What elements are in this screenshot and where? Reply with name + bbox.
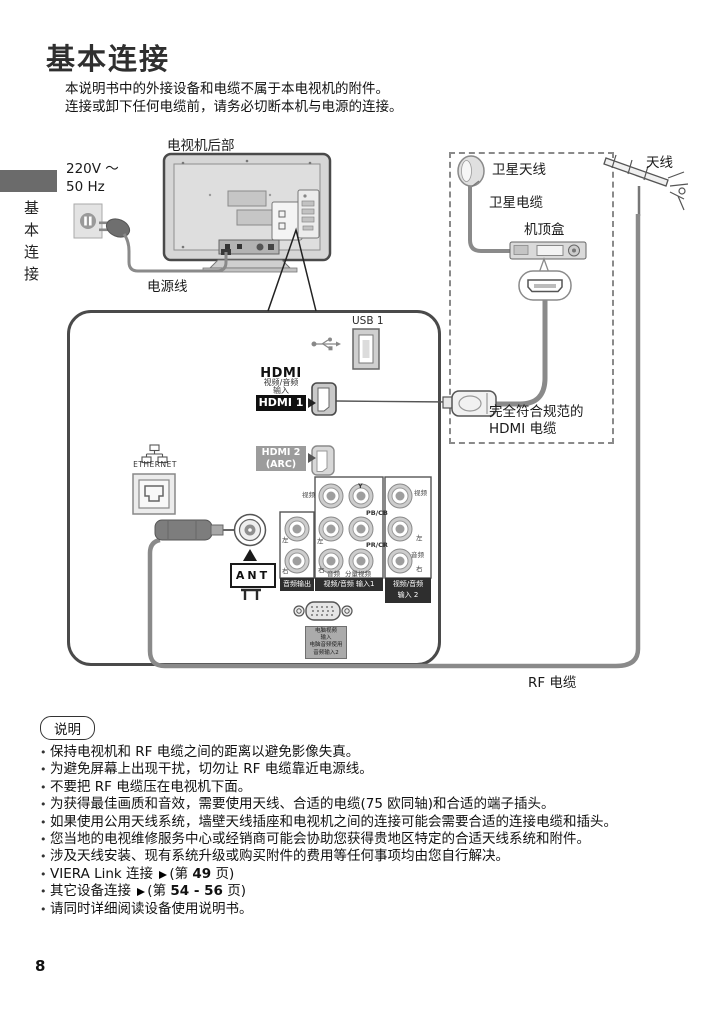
antenna-label: 天线	[646, 155, 673, 171]
satellite-dish-label: 卫星天线	[492, 162, 546, 178]
note-item: 不要把 RF 电缆压在电视机下面。	[40, 779, 702, 796]
jack-label-video-in2: 视频	[414, 490, 427, 497]
av-input2-bar: 视频/音频 输入 2	[385, 578, 431, 603]
note-item: 请同时详细阅读设备使用说明书。	[40, 901, 702, 918]
pc-input-label-box: 电脑视频 输入 电脑音频使用 音频输入2	[305, 626, 347, 659]
note-text: 页)	[223, 883, 246, 899]
note-item: 保持电视机和 RF 电缆之间的距离以避免影像失真。	[40, 744, 702, 761]
arrow-right-icon	[159, 871, 167, 879]
power-outlet-illustration	[74, 204, 102, 238]
audio-out-bar: 音频输出	[280, 578, 314, 591]
jack-label-y: Y	[358, 482, 363, 490]
jack-label-pb: PB/CB	[366, 509, 388, 517]
page-title: 基本连接	[46, 36, 170, 78]
hdmi-cable-label-line2: HDMI 电缆	[489, 421, 556, 437]
note-item-viera-link: VIERA Link 连接 (第 49 页)	[40, 866, 702, 883]
usb-label: USB 1	[352, 315, 384, 327]
jack-label-audio-in1: 音频	[327, 571, 340, 578]
callout-lines	[268, 230, 316, 311]
jack-label-right: 右	[282, 568, 289, 575]
intro-line-1: 本说明书中的外接设备和电缆不属于本电视机的附件。	[65, 81, 403, 99]
av-input2-bar-line1: 视频/音频	[385, 579, 431, 590]
jack-label-left-in2: 左	[416, 535, 423, 542]
hdmi-cable-label-line1: 完全符合规范的	[489, 404, 584, 420]
rf-cable-label: RF 电缆	[528, 675, 576, 691]
jack-label-pr: PR/CR	[366, 541, 388, 549]
tv-rear-label: 电视机后部	[167, 138, 235, 154]
ant-label-box: ANT	[230, 563, 276, 588]
notes-header: 说明	[40, 716, 95, 740]
power-cord	[124, 234, 226, 271]
jack-label-audio-in2: 音频	[411, 552, 424, 559]
pc-label-line4: 音频输入2	[306, 650, 346, 657]
page-number: 8	[35, 957, 45, 975]
av-input1-bar: 视频/音频 输入1	[315, 578, 383, 591]
jack-label-left: 左	[282, 537, 289, 544]
connection-panel-box	[67, 310, 441, 666]
hdmi1-chip: HDMI 1	[256, 395, 306, 411]
jack-label-component: 分量视频	[345, 571, 371, 578]
pc-label-line3: 电脑音频使用	[306, 642, 346, 649]
jack-label-right-in2: 右	[416, 566, 423, 573]
note-text: (第	[147, 883, 170, 899]
notes-list: 保持电视机和 RF 电缆之间的距离以避免影像失真。 为避免屏幕上出现干扰，切勿让…	[40, 744, 702, 918]
hdmi2-chip: HDMI 2 (ARC)	[256, 446, 306, 471]
note-item-other-devices: 其它设备连接 (第 54 - 56 页)	[40, 883, 702, 900]
set-top-box-label: 机顶盒	[524, 222, 565, 238]
power-plug-illustration	[99, 216, 132, 241]
hdmi2-chip-line1: HDMI 2	[256, 447, 306, 459]
note-item: 涉及天线安装、现有系统升级或购买附件的费用等任何事项均由您自行解决。	[40, 848, 702, 865]
note-text: 其它设备连接	[50, 883, 135, 899]
hdmi2-chip-line2: (ARC)	[256, 459, 306, 471]
jack-label-left-in1: 左	[317, 538, 324, 545]
note-item: 如果使用公用天线系统，墙壁天线插座和电视机之间的连接可能会需要合适的连接电缆和插…	[40, 814, 702, 831]
power-cord-label: 电源线	[147, 279, 188, 295]
voltage-label-line1: 220V ～	[66, 161, 119, 177]
arrow-right-icon	[137, 888, 145, 896]
ethernet-label: ETHERNET	[120, 460, 190, 469]
sidebar-section-label: 基本连接	[22, 200, 42, 288]
note-text: (第	[169, 866, 192, 882]
satellite-cable-label: 卫星电缆	[489, 195, 543, 211]
note-item: 为获得最佳画质和音效，需要使用天线、合适的电缆(75 欧同轴)和合适的端子插头。	[40, 796, 702, 813]
intro-line-2: 连接或卸下任何电缆前，请务必切断本机与电源的连接。	[65, 99, 403, 117]
voltage-label-line2: 50 Hz	[66, 179, 105, 195]
jack-label-video-in1: 视频	[302, 492, 315, 499]
notes-section: 说明 保持电视机和 RF 电缆之间的距离以避免影像失真。 为避免屏幕上出现干扰，…	[40, 716, 702, 918]
note-text: 页)	[211, 866, 234, 882]
jack-label-right-in1: 右	[318, 567, 325, 574]
note-text: VIERA Link 连接	[50, 866, 157, 882]
hdmi-caption-line2: 输入	[256, 387, 306, 395]
sidebar-tab	[0, 170, 57, 192]
intro-text: 本说明书中的外接设备和电缆不属于本电视机的附件。 连接或卸下任何电缆前，请务必切…	[65, 81, 403, 116]
av-input2-bar-line2: 输入 2	[385, 590, 431, 601]
page-ref: 54 - 56	[170, 883, 223, 899]
note-item: 为避免屏幕上出现干扰，切勿让 RF 电缆靠近电源线。	[40, 761, 702, 778]
manual-page: 基本连接 本说明书中的外接设备和电缆不属于本电视机的附件。 连接或卸下任何电缆前…	[0, 0, 728, 1021]
page-ref: 49	[192, 866, 211, 882]
tv-rear-illustration	[164, 154, 330, 272]
note-item: 您当地的电视维修服务中心或经销商可能会协助您获得贵地区特定的合适天线系统和附件。	[40, 831, 702, 848]
